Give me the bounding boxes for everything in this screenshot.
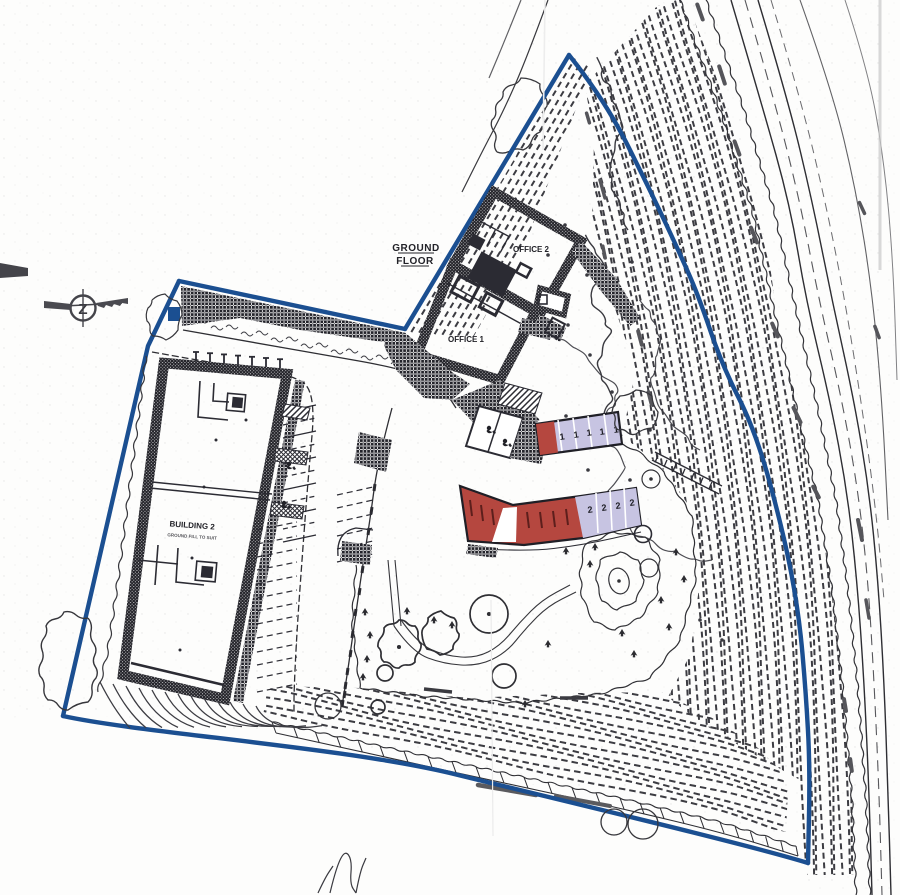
- svg-text:GROUND: GROUND: [392, 243, 439, 254]
- svg-text:FLOOR: FLOOR: [396, 256, 434, 267]
- svg-text:Z: Z: [78, 301, 87, 318]
- svg-text:OFFICE 2: OFFICE 2: [513, 245, 550, 254]
- svg-text:OFFICE 1: OFFICE 1: [448, 335, 485, 344]
